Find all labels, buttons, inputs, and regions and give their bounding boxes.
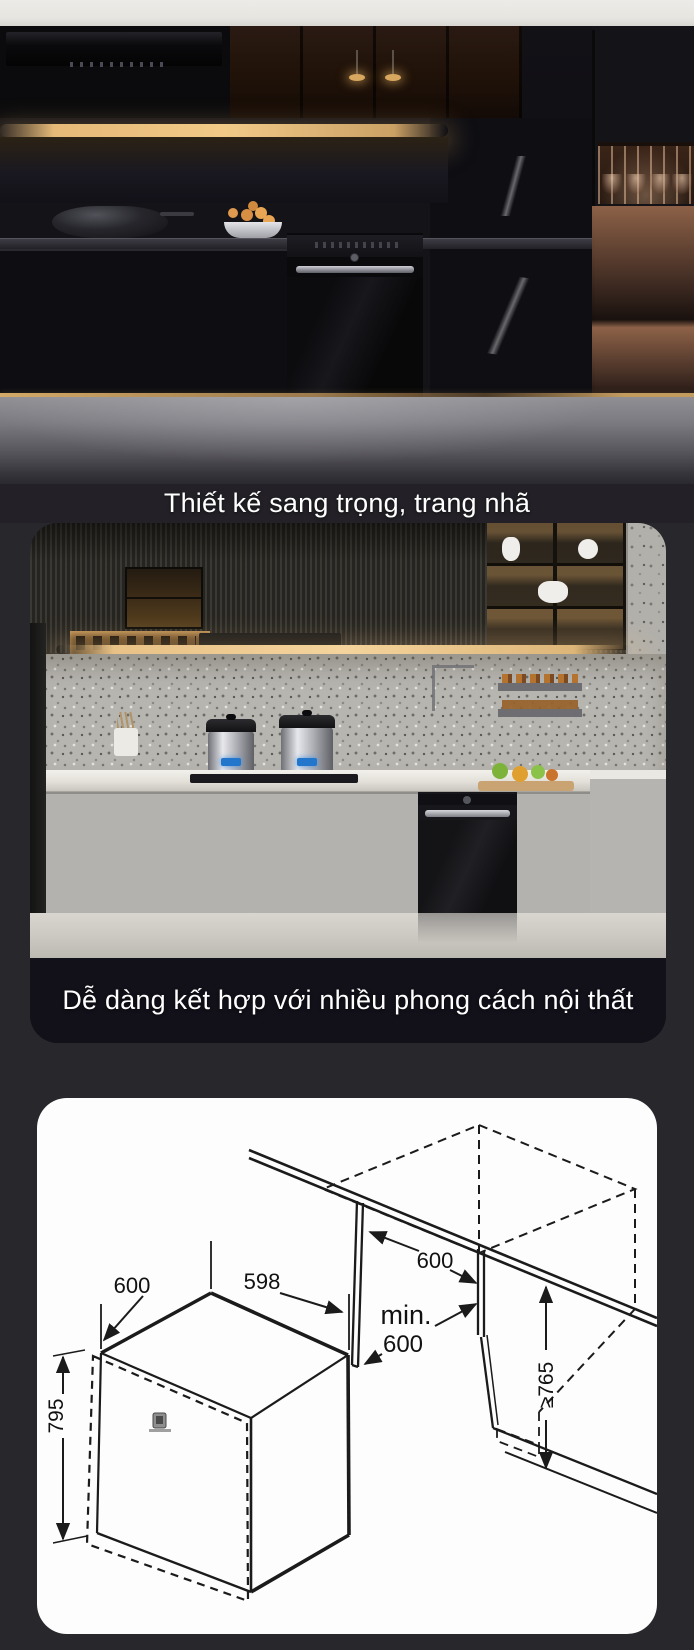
steel-cooker — [281, 727, 333, 775]
niche-left-panel — [352, 1201, 363, 1367]
cutting-board — [478, 781, 574, 791]
dim-box-width-label: 598 — [244, 1269, 281, 1294]
upper-cabinet-seams — [230, 26, 522, 118]
l-return-cabinet — [590, 770, 666, 913]
light-kitchen-floor — [30, 913, 666, 958]
spice-rack — [498, 683, 582, 691]
wall-pot-filler — [432, 665, 474, 711]
dishwasher-door — [287, 277, 423, 398]
brand-logo-badge — [350, 253, 359, 262]
door-dashed-outline — [87, 1356, 248, 1601]
dim-box-depth-label: 600 — [114, 1273, 151, 1298]
installation-diagram: 600 598 795 600 min. 600 — [37, 1098, 657, 1634]
countertop-lines — [249, 1150, 657, 1326]
left-wall-edge — [30, 623, 46, 933]
copper-display-lower — [592, 206, 694, 402]
dark-backsplash — [0, 137, 448, 203]
fruit-pile — [228, 208, 238, 218]
dishwasher-front-dark — [287, 233, 423, 398]
dim-niche-min-label: min. — [380, 1300, 431, 1330]
dark-kitchen-floor — [0, 397, 694, 484]
steel-cooker — [208, 731, 254, 775]
fresh-fruits — [492, 763, 508, 779]
pendant-light — [392, 50, 394, 76]
dim-niche-min-value: 600 — [383, 1331, 423, 1358]
built-under-dishwasher — [418, 792, 517, 916]
cabinet-and-floor-lines — [481, 1335, 657, 1513]
hero-dark-kitchen-photo — [0, 26, 694, 484]
white-ornament — [502, 537, 520, 561]
kitchen-style-card: Dễ dàng kết hợp với nhiều phong cách nội… — [30, 523, 666, 1043]
dim-niche-height-label: ≥765 — [535, 1362, 558, 1409]
dim-counter-depth-label: 600 — [417, 1248, 454, 1273]
gas-hob — [190, 774, 358, 783]
wok-pan — [52, 206, 168, 238]
brand-logo-badge — [463, 796, 471, 804]
gray-base-cabinets — [30, 792, 666, 913]
wall-top-strip — [0, 0, 694, 26]
glass-cabinet-left — [125, 567, 203, 629]
caption-compatibility-text: Dễ dàng kết hợp với nhiều phong cách nội… — [62, 985, 633, 1016]
wok-handle — [160, 212, 194, 216]
island-marble-front — [0, 249, 292, 396]
niche-right-edge — [478, 1249, 484, 1337]
under-cabinet-light — [0, 124, 448, 137]
caption-band-compatibility: Dễ dàng kết hợp với nhiều phong cách nội… — [30, 958, 666, 1043]
product-page-root: Thiết kế sang trọng, trang nhã — [0, 0, 694, 1650]
utensil-cup — [114, 728, 138, 756]
dishwasher-door — [418, 820, 517, 916]
light-kitchen-photo — [30, 523, 666, 958]
white-ornament — [578, 539, 598, 559]
brand-logo — [149, 1413, 171, 1432]
installation-dimensions-card: 600 598 795 600 min. 600 — [37, 1098, 657, 1634]
dishwasher-isometric-box — [97, 1293, 349, 1592]
range-hood-cabinet — [0, 26, 230, 118]
dim-box-height-label: 795 — [45, 1398, 68, 1433]
caption-design-text: Thiết kế sang trọng, trang nhã — [164, 488, 530, 519]
hood-control-lights — [70, 62, 170, 67]
marble-vein — [440, 156, 590, 216]
dim-box-width-arrow — [280, 1293, 342, 1312]
hanging-wine-glasses — [598, 142, 694, 204]
dishwasher-control-buttons — [315, 242, 401, 248]
dishwasher-handle — [425, 810, 510, 817]
under-cabinet-glow — [56, 645, 632, 654]
dishwasher-handle — [296, 266, 414, 273]
range-hood — [6, 32, 222, 66]
white-vase — [538, 581, 568, 603]
caption-band-design: Thiết kế sang trọng, trang nhã — [0, 484, 694, 523]
pendant-light — [356, 50, 358, 76]
floor-reflection — [418, 913, 517, 943]
fruit-bowl — [224, 222, 282, 238]
